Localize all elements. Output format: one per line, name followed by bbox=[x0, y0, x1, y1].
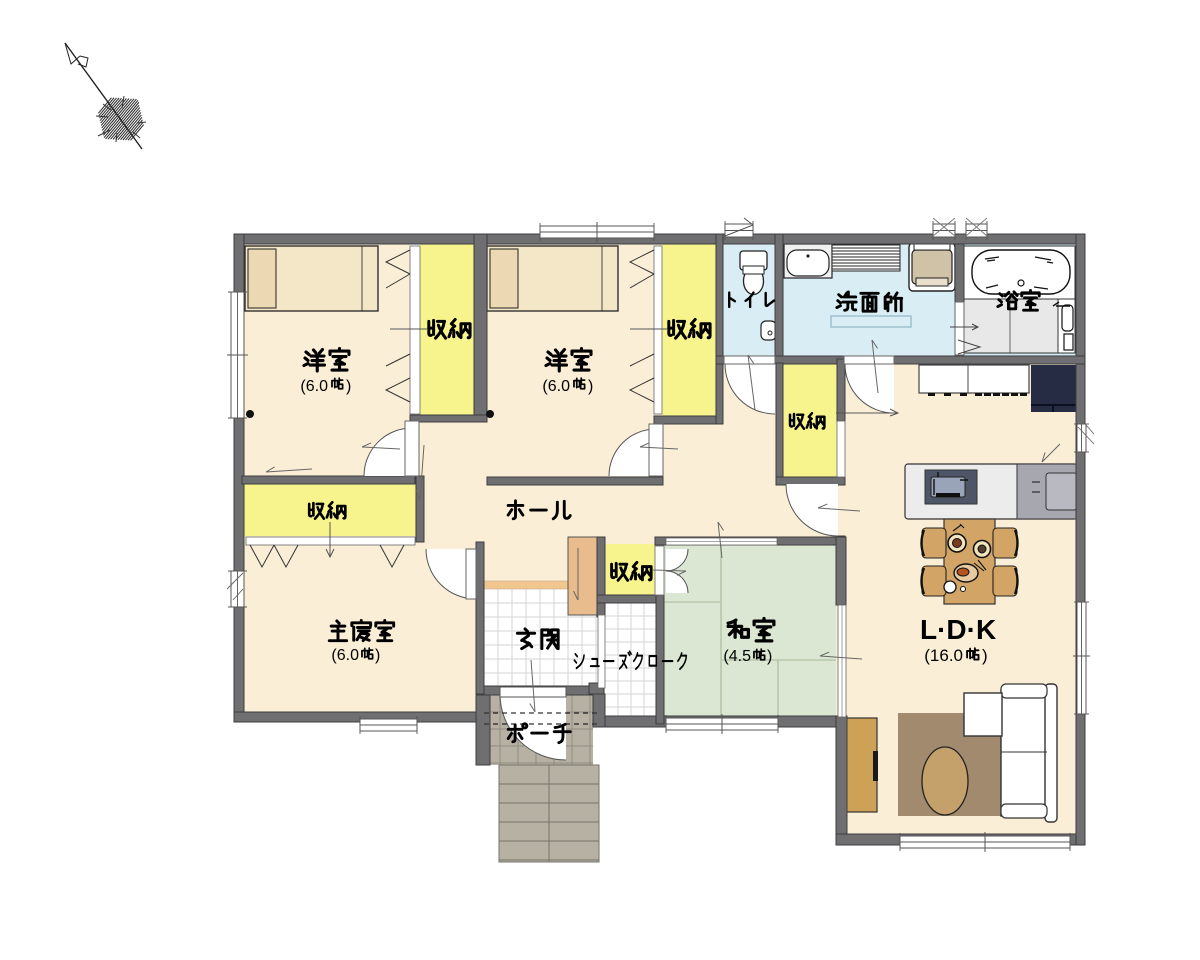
svg-text:): ) bbox=[346, 378, 351, 395]
svg-text:): ) bbox=[375, 647, 380, 664]
svg-text:): ) bbox=[588, 378, 593, 395]
svg-text:): ) bbox=[982, 646, 988, 665]
svg-text:(6.0: (6.0 bbox=[300, 378, 328, 395]
svg-text:(4.5: (4.5 bbox=[723, 648, 751, 665]
svg-text:(6.0: (6.0 bbox=[542, 378, 570, 395]
svg-text:L·D·K: L·D·K bbox=[920, 614, 996, 645]
svg-text:): ) bbox=[767, 648, 772, 665]
svg-text:(6.0: (6.0 bbox=[331, 647, 359, 664]
svg-text:(16.0: (16.0 bbox=[924, 646, 963, 665]
